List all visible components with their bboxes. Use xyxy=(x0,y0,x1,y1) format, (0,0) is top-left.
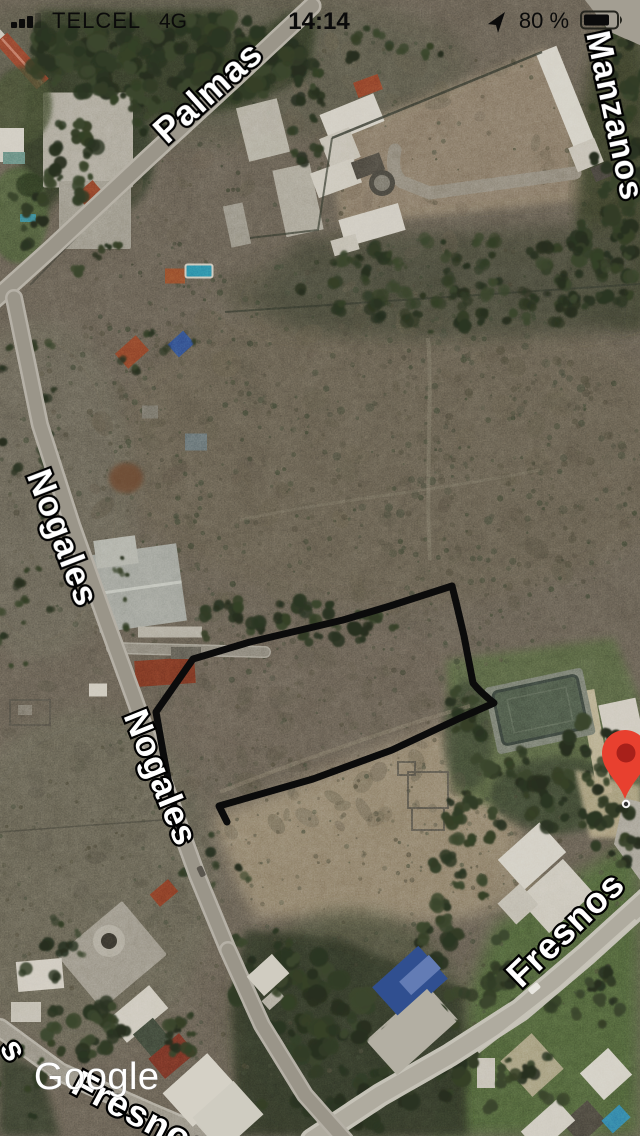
svg-text:4G: 4G xyxy=(159,10,187,33)
svg-text:14:14: 14:14 xyxy=(288,8,350,35)
svg-text:80 %: 80 % xyxy=(519,8,569,33)
svg-text:Google: Google xyxy=(34,1056,160,1098)
svg-text:TELCEL: TELCEL xyxy=(52,8,141,33)
